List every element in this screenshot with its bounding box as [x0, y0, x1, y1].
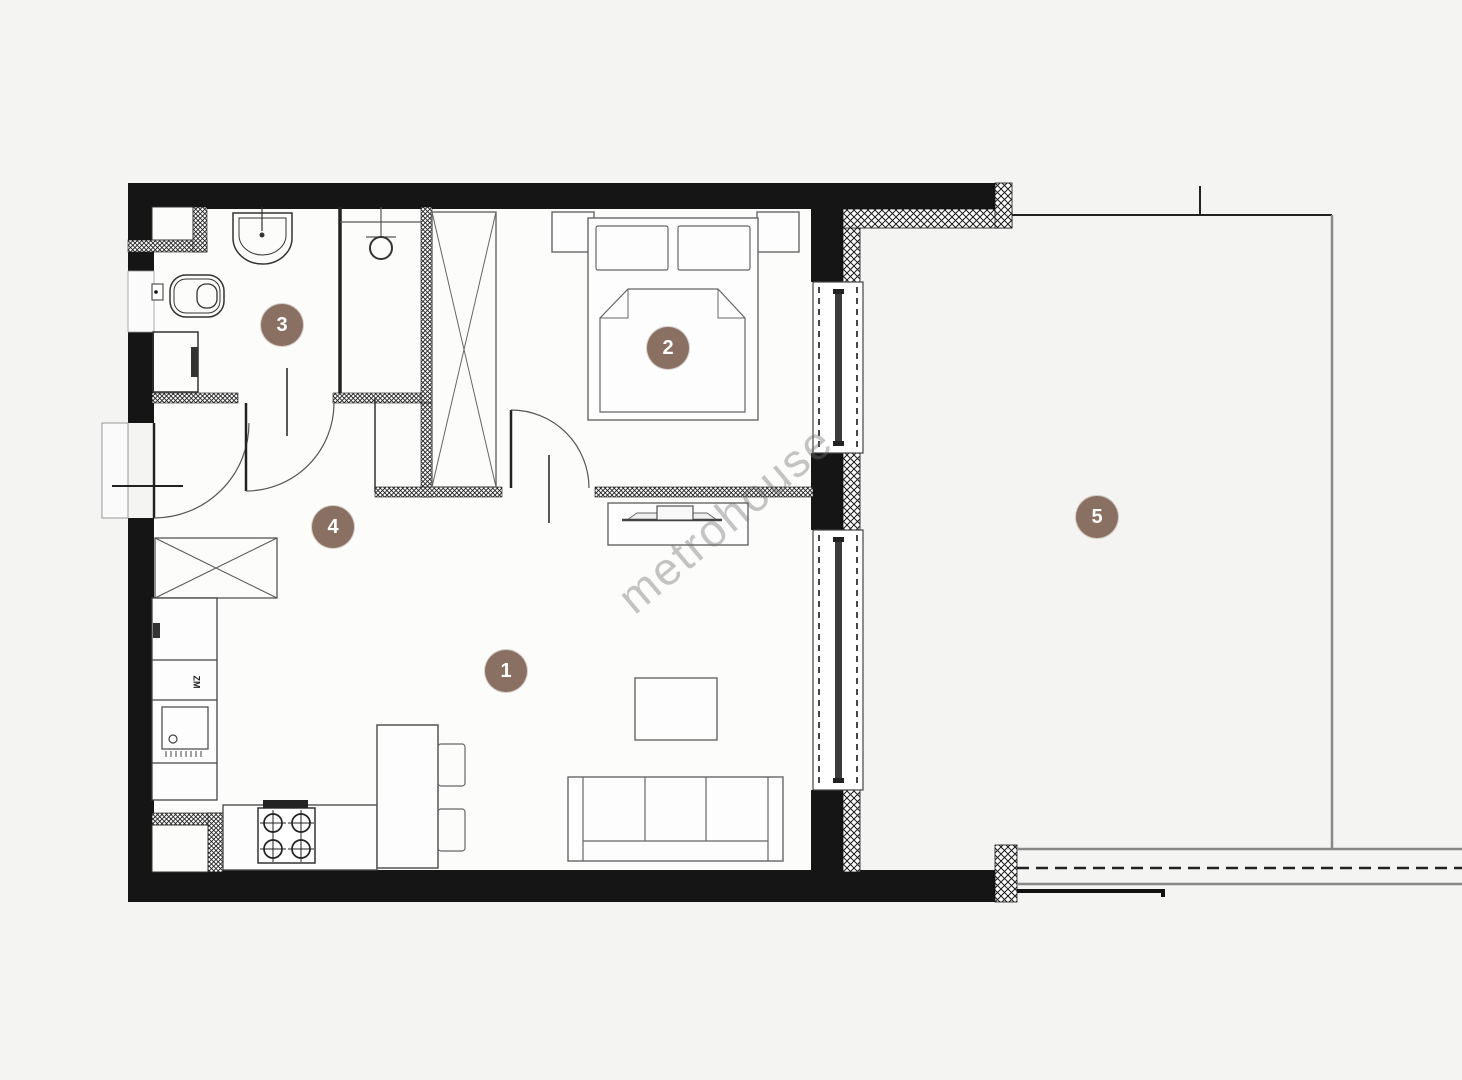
wall-top — [128, 183, 995, 209]
hallway-wardrobe — [155, 538, 277, 598]
insulation — [843, 183, 1017, 902]
shaft-bottom-left — [152, 825, 208, 872]
windows — [813, 282, 863, 790]
room-marker-terrace: 5 — [1076, 496, 1118, 538]
nightstand-right — [757, 212, 799, 252]
pillow-right — [678, 226, 750, 270]
room-marker-bathroom: 3 — [261, 304, 303, 346]
dining-table — [377, 725, 438, 868]
bed-symbol — [588, 218, 758, 420]
entrance-doorstep — [102, 423, 128, 518]
wall-pier-top — [811, 207, 843, 282]
wall-bottom — [128, 870, 995, 902]
terrace-outline — [1012, 186, 1462, 897]
coffee-table — [635, 678, 717, 740]
wardrobe-symbol — [432, 212, 496, 487]
room-marker-bedroom: 2 — [647, 327, 689, 369]
terrace-bottom-hook — [1017, 891, 1163, 897]
shaft-top-left — [152, 207, 193, 240]
sofa-symbol — [568, 777, 783, 861]
fridge-handle — [153, 623, 160, 638]
floor-plan-page: 1 2 3 4 5 ZM metrohouse — [0, 0, 1462, 1080]
bathroom-wall-niche — [128, 271, 154, 332]
living-room-window — [813, 530, 863, 790]
stove-symbol — [258, 800, 315, 863]
room-marker-living-room: 1 — [485, 650, 527, 692]
room-marker-hallway: 4 — [312, 506, 354, 548]
wall-pier-bottom — [811, 790, 843, 872]
appliance-label: ZM — [192, 676, 202, 689]
pillow-left — [596, 226, 668, 270]
kitchen-tall-units — [152, 598, 217, 800]
wall-left-lower — [128, 518, 154, 875]
